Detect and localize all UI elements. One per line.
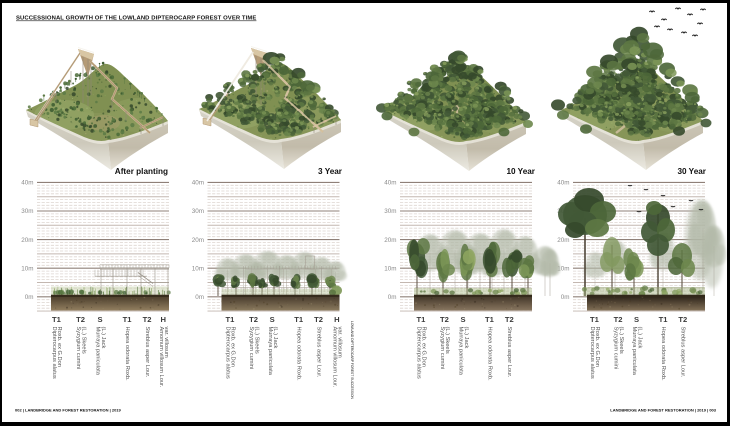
svg-text:T2: T2 xyxy=(143,315,152,324)
svg-text:10m: 10m xyxy=(21,265,33,272)
svg-text:0m: 0m xyxy=(25,294,34,301)
svg-text:40m: 40m xyxy=(21,180,33,187)
svg-text:Hopea odorata Roxb.: Hopea odorata Roxb. xyxy=(486,327,492,381)
svg-text:Hopea odorata Roxb.: Hopea odorata Roxb. xyxy=(296,327,302,381)
svg-text:Roxb. ex G.Don: Roxb. ex G.Don xyxy=(230,327,236,367)
svg-text:Roxb. ex G.Don: Roxb. ex G.Don xyxy=(56,327,62,367)
svg-text:10m: 10m xyxy=(384,265,396,272)
svg-text:S: S xyxy=(460,315,465,324)
svg-text:Hopea odorata Roxb.: Hopea odorata Roxb. xyxy=(660,327,666,381)
svg-text:20m: 20m xyxy=(192,237,204,244)
svg-text:S: S xyxy=(634,315,639,324)
svg-text:30m: 30m xyxy=(192,208,204,215)
svg-text:Hopea odorata Roxb.: Hopea odorata Roxb. xyxy=(124,327,130,381)
svg-text:SUCCESSIONAL GROWTH OF THE LOW: SUCCESSIONAL GROWTH OF THE LOWLAND DIPTE… xyxy=(16,16,256,22)
svg-text:(L.) Skeels: (L.) Skeels xyxy=(253,327,259,354)
svg-text:H: H xyxy=(334,315,339,324)
svg-text:T2: T2 xyxy=(76,315,85,324)
svg-text:T1: T1 xyxy=(52,315,62,324)
svg-text:S: S xyxy=(270,315,275,324)
svg-text:0m: 0m xyxy=(561,294,570,301)
svg-text:Syzygium cumini: Syzygium cumini xyxy=(248,327,254,370)
svg-text:T1: T1 xyxy=(294,315,304,324)
svg-text:Murraya paniculata: Murraya paniculata xyxy=(458,327,464,376)
svg-text:T1: T1 xyxy=(225,315,235,324)
svg-text:3 Year: 3 Year xyxy=(318,167,343,176)
svg-text:T1: T1 xyxy=(485,315,495,324)
svg-text:T2: T2 xyxy=(440,315,449,324)
svg-text:Roxb. ex G.Don: Roxb. ex G.Don xyxy=(421,327,427,367)
svg-text:var. villosum: var. villosum xyxy=(163,327,169,359)
svg-text:T1: T1 xyxy=(590,315,600,324)
svg-text:20m: 20m xyxy=(557,237,569,244)
svg-text:T1: T1 xyxy=(123,315,133,324)
svg-text:T2: T2 xyxy=(505,315,514,324)
svg-text:Syzygium cumini: Syzygium cumini xyxy=(613,327,619,370)
svg-text:Dipterocarpus alatus: Dipterocarpus alatus xyxy=(51,327,57,379)
svg-text:30m: 30m xyxy=(384,208,396,215)
svg-text:T2: T2 xyxy=(249,315,258,324)
svg-text:T1: T1 xyxy=(659,315,669,324)
svg-text:40m: 40m xyxy=(192,180,204,187)
svg-text:Dipterocarpus alatus: Dipterocarpus alatus xyxy=(589,327,595,379)
svg-text:20m: 20m xyxy=(21,237,33,244)
svg-text:40m: 40m xyxy=(557,180,569,187)
svg-text:T2: T2 xyxy=(314,315,323,324)
svg-text:30m: 30m xyxy=(21,208,33,215)
svg-text:H: H xyxy=(161,315,166,324)
svg-text:After planting: After planting xyxy=(115,167,168,176)
svg-text:10m: 10m xyxy=(192,265,204,272)
svg-text:002 | LANDBRIDGE AND FOREST RE: 002 | LANDBRIDGE AND FOREST RESTORATION … xyxy=(15,408,122,413)
svg-text:40m: 40m xyxy=(384,180,396,187)
svg-text:0m: 0m xyxy=(195,294,204,301)
svg-text:(L.) Jack: (L.) Jack xyxy=(463,327,469,349)
svg-text:LOWLAND DIPTEROCARP FOREST SUC: LOWLAND DIPTEROCARP FOREST SUCCESSION xyxy=(350,321,354,400)
svg-text:Streblus asper Lour.: Streblus asper Lour. xyxy=(144,327,150,378)
svg-text:Murraya paniculata: Murraya paniculata xyxy=(631,327,637,376)
svg-text:0m: 0m xyxy=(388,294,397,301)
svg-text:S: S xyxy=(97,315,102,324)
svg-text:T2: T2 xyxy=(614,315,623,324)
svg-text:T1: T1 xyxy=(416,315,426,324)
svg-text:Amomum villosum Lour.: Amomum villosum Lour. xyxy=(332,327,338,388)
svg-text:Dipterocarpus alatus: Dipterocarpus alatus xyxy=(416,327,422,379)
svg-text:(L.) Skeels: (L.) Skeels xyxy=(80,327,86,354)
svg-text:20m: 20m xyxy=(384,237,396,244)
svg-text:Murraya paniculata: Murraya paniculata xyxy=(267,327,273,376)
svg-text:Streblus asper Lour.: Streblus asper Lour. xyxy=(506,327,512,378)
svg-text:(L.) Skeels: (L.) Skeels xyxy=(444,327,450,354)
svg-text:Murraya paniculata: Murraya paniculata xyxy=(95,327,101,376)
svg-text:Amomum villosum Lour.: Amomum villosum Lour. xyxy=(158,327,164,388)
svg-text:Dipterocarpus alatus: Dipterocarpus alatus xyxy=(225,327,231,379)
svg-text:(L.) Jack: (L.) Jack xyxy=(272,327,278,349)
svg-text:30 Year: 30 Year xyxy=(677,167,706,176)
svg-text:(L.) Jack: (L.) Jack xyxy=(100,327,106,349)
svg-text:var. villosum: var. villosum xyxy=(337,327,343,359)
svg-text:Streblus asper Lour.: Streblus asper Lour. xyxy=(680,327,686,378)
svg-text:10 Year: 10 Year xyxy=(506,167,535,176)
svg-text:Streblus asper Lour.: Streblus asper Lour. xyxy=(316,327,322,378)
svg-text:Roxb. ex G.Don: Roxb. ex G.Don xyxy=(594,327,600,367)
svg-text:(L.) Skeels: (L.) Skeels xyxy=(618,327,624,354)
svg-text:LANDBRIDGE AND FOREST RESTORAT: LANDBRIDGE AND FOREST RESTORATION | 2019… xyxy=(610,408,717,413)
svg-text:T2: T2 xyxy=(678,315,687,324)
svg-text:Syzygium cumini: Syzygium cumini xyxy=(75,327,81,370)
svg-text:Syzygium cumini: Syzygium cumini xyxy=(439,327,445,370)
svg-text:(L.) Jack: (L.) Jack xyxy=(636,327,642,349)
